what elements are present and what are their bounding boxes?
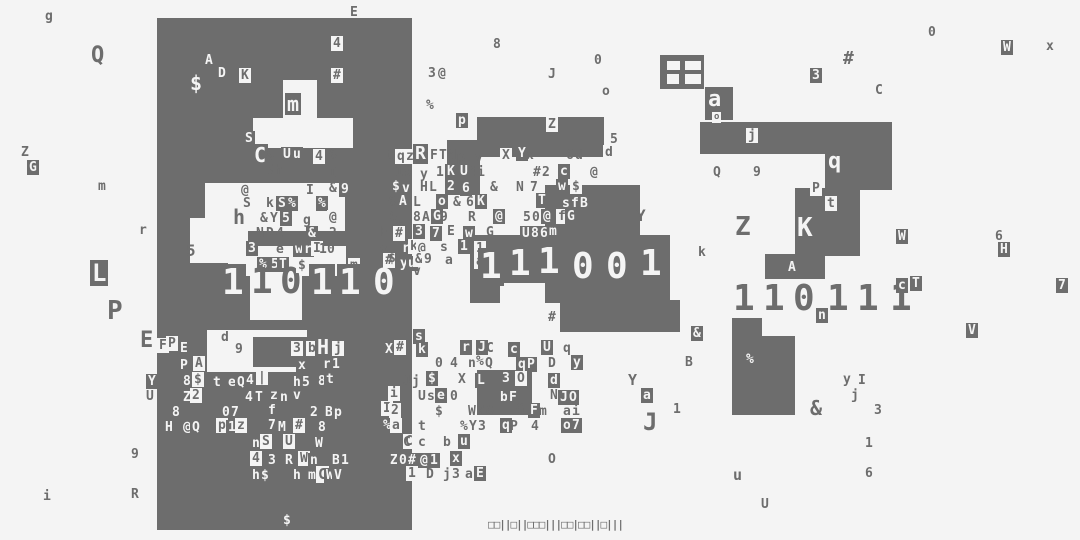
- glyph: 5: [523, 211, 531, 224]
- glyph: %: [460, 420, 468, 433]
- glyph: U: [761, 498, 769, 511]
- glyph: 5: [266, 164, 274, 177]
- glyph: #: [843, 50, 854, 68]
- glyph: J: [403, 375, 411, 388]
- glyph: P: [166, 336, 178, 351]
- glyph: H: [420, 181, 428, 194]
- glyph: 1: [428, 453, 440, 468]
- glyph: 3: [291, 341, 303, 356]
- glyph: &: [306, 226, 318, 241]
- glyph: 7: [477, 405, 485, 418]
- glyph: E: [140, 330, 153, 352]
- glyph: A: [786, 260, 798, 275]
- glyph: K: [795, 214, 815, 242]
- ink-block: [732, 336, 795, 415]
- glyph: k: [416, 342, 428, 357]
- glyph: R: [468, 211, 476, 224]
- glyph: g: [45, 10, 53, 23]
- glyph: 8: [493, 38, 501, 51]
- glyph: $: [281, 513, 293, 528]
- glyph: 3: [874, 404, 882, 417]
- glyph: 4: [468, 166, 476, 179]
- glyph: o: [602, 85, 610, 98]
- glyph: o: [380, 243, 388, 256]
- glyph: 9: [753, 166, 761, 179]
- glyph: t: [418, 420, 426, 433]
- glyph: $: [188, 72, 204, 94]
- glyph: a: [445, 254, 453, 267]
- glyph: V: [332, 468, 344, 483]
- glyph: j: [332, 341, 344, 356]
- glyph: i: [572, 405, 580, 418]
- glyph: 9: [235, 343, 243, 356]
- glyph: U: [418, 390, 426, 403]
- glyph: I: [858, 374, 866, 387]
- glyph: t: [324, 372, 336, 387]
- glyph: #: [331, 68, 343, 83]
- glyph: 2: [389, 403, 401, 418]
- glyph: 1: [863, 436, 875, 451]
- glyph: d: [221, 331, 229, 344]
- glyph: 8: [413, 211, 421, 224]
- glyph: q: [563, 342, 571, 355]
- glyph: O: [515, 371, 527, 386]
- glyph: Z: [735, 214, 751, 240]
- glyph: a: [641, 388, 653, 403]
- glyph: c: [418, 436, 426, 449]
- glyph: J: [643, 410, 657, 434]
- glyph: |: [256, 370, 268, 385]
- glyph: v: [291, 388, 303, 403]
- glyph: %: [316, 196, 328, 211]
- glyph: &: [490, 181, 498, 194]
- glyph: P: [810, 181, 822, 196]
- glyph: 6: [329, 149, 337, 162]
- glyph: 1: [763, 281, 785, 317]
- glyph: y: [571, 355, 583, 370]
- glyph: m: [547, 224, 559, 239]
- glyph: n: [816, 308, 828, 323]
- glyph: 1: [309, 264, 335, 302]
- glyph: s: [427, 390, 435, 403]
- glyph: 1: [478, 248, 504, 286]
- glyph: C: [875, 84, 883, 97]
- glyph: g: [395, 213, 403, 226]
- glyph: X: [500, 148, 512, 163]
- glyph: n: [278, 390, 290, 405]
- glyph: #: [394, 340, 406, 355]
- glyph: v: [475, 151, 483, 164]
- glyph: 9: [131, 448, 139, 461]
- glyph: r: [139, 224, 147, 237]
- glyph: c: [508, 342, 520, 357]
- glyph: $: [570, 179, 582, 194]
- glyph: p: [457, 151, 465, 164]
- glyph: @: [436, 66, 448, 81]
- ink-block: [477, 117, 604, 157]
- glyph: z: [235, 418, 247, 433]
- glyph: Y: [628, 373, 637, 388]
- glyph: 1: [638, 245, 664, 283]
- glyph: E: [474, 466, 486, 481]
- glyph: d: [603, 145, 615, 160]
- glyph: p: [456, 113, 468, 128]
- glyph: Q: [713, 166, 721, 179]
- glyph: 0: [327, 243, 335, 256]
- glyph: n: [468, 357, 476, 370]
- glyph: 2: [542, 166, 550, 179]
- glyph: C: [403, 436, 411, 449]
- glyph: K: [239, 68, 251, 83]
- glyph: W: [313, 436, 325, 451]
- glyph: K: [445, 164, 457, 179]
- glyph: p: [332, 405, 344, 420]
- glyph: o: [712, 112, 721, 123]
- glyph: O: [548, 453, 556, 466]
- glyph: 1: [220, 264, 246, 302]
- glyph: 4: [244, 373, 256, 388]
- glyph: G: [516, 403, 524, 416]
- art-canvas: gQZGmrLPEFPEYU9iREADK$4#mSC&Uu465hI@I&9S…: [0, 0, 1080, 540]
- glyph: B: [578, 196, 590, 211]
- glyph: $: [192, 372, 204, 387]
- glyph: A: [397, 194, 409, 209]
- glyph: H: [315, 336, 331, 358]
- glyph: 3: [500, 371, 512, 386]
- glyph: J: [548, 68, 556, 81]
- glyph: r: [460, 340, 472, 355]
- glyph: $: [388, 252, 396, 265]
- glyph: 0: [371, 264, 397, 302]
- glyph: E: [380, 226, 388, 239]
- glyph: T: [910, 276, 922, 291]
- glyph: b: [443, 436, 451, 449]
- glyph: 5: [280, 211, 292, 226]
- glyph: 4: [276, 227, 284, 240]
- glyph: O: [486, 405, 494, 418]
- glyph: 9: [422, 252, 434, 267]
- glyph: D: [216, 66, 228, 81]
- glyph: f: [266, 403, 278, 418]
- glyph: j: [412, 375, 420, 388]
- glyph: 6: [863, 466, 875, 481]
- glyph: 0: [435, 357, 443, 370]
- glyph: c: [896, 278, 908, 293]
- glyph: #: [546, 310, 558, 325]
- glyph: Z: [21, 146, 29, 159]
- glyph: j: [746, 128, 758, 143]
- glyph: i: [43, 490, 51, 503]
- glyph: V: [966, 323, 978, 338]
- glyph: $: [435, 405, 443, 418]
- glyph: $: [296, 258, 308, 273]
- glyph: R: [386, 211, 394, 224]
- glyph: O: [567, 390, 579, 405]
- glyph: h: [275, 164, 283, 177]
- glyph: u: [291, 147, 303, 162]
- glyph: w: [556, 179, 568, 194]
- ink-block: [700, 122, 892, 154]
- glyph: F: [430, 149, 438, 162]
- glyph: U: [283, 434, 295, 449]
- glyph: %: [744, 352, 756, 367]
- glyph: 1: [395, 166, 403, 179]
- glyph: #: [293, 418, 305, 433]
- glyph: 1: [406, 466, 418, 481]
- glyph: A: [203, 53, 215, 68]
- glyph: 0: [604, 248, 630, 286]
- glyph: Y: [270, 212, 278, 225]
- glyph: 0: [570, 248, 596, 286]
- glyph: 1: [337, 264, 363, 302]
- glyph: I: [306, 184, 314, 197]
- glyph: 9: [404, 166, 412, 179]
- glyph: j: [443, 468, 451, 481]
- glyph: Y: [146, 374, 158, 389]
- glyph: R: [283, 453, 295, 468]
- glyph: N: [256, 227, 264, 240]
- glyph: $: [259, 468, 271, 483]
- glyph: k: [266, 197, 274, 210]
- glyph: 4: [450, 357, 458, 370]
- glyph: 3: [478, 420, 486, 433]
- glyph: 1: [733, 281, 755, 317]
- glyph: u: [458, 434, 470, 449]
- paper-block: [500, 283, 545, 305]
- glyph: 2: [190, 388, 202, 403]
- glyph: □□||□||□□□|||□□|□□||□|||: [488, 519, 623, 530]
- glyph: A: [422, 211, 430, 224]
- glyph: x: [1046, 40, 1054, 53]
- glyph: 9: [440, 211, 448, 224]
- glyph: U: [541, 340, 553, 355]
- glyph: 4: [250, 451, 262, 466]
- glyph: 1: [339, 453, 351, 468]
- glyph: 1: [251, 264, 273, 300]
- glyph: I: [329, 167, 337, 180]
- glyph: a: [563, 405, 571, 418]
- glyph: @: [327, 210, 339, 225]
- glyph: h: [233, 207, 245, 227]
- glyph: y: [843, 373, 851, 386]
- glyph: A: [193, 356, 205, 371]
- glyph: 4: [531, 420, 539, 433]
- glyph: 9: [339, 182, 351, 197]
- glyph: i: [388, 386, 400, 401]
- glyph: W: [468, 405, 476, 418]
- glyph: a: [706, 88, 723, 112]
- ink-block: [560, 300, 680, 332]
- glyph: P: [107, 298, 123, 324]
- glyph: 7: [570, 418, 582, 433]
- glyph: W: [1001, 40, 1013, 55]
- glyph: P: [510, 420, 518, 433]
- glyph: T: [253, 390, 265, 405]
- glyph: #: [533, 166, 541, 179]
- glyph: 6: [460, 181, 472, 196]
- glyph: e: [276, 243, 284, 256]
- glyph: P: [178, 358, 190, 373]
- glyph: L: [90, 260, 108, 286]
- glyph: 4: [331, 36, 343, 51]
- glyph: k: [698, 246, 706, 259]
- glyph: Q: [485, 357, 493, 370]
- glyph: L: [413, 196, 421, 209]
- glyph: N: [448, 149, 456, 162]
- glyph: 4: [313, 149, 325, 164]
- glyph: G: [565, 209, 577, 224]
- glyph: X: [458, 373, 466, 386]
- glyph: H: [163, 420, 175, 435]
- glyph: 1: [507, 245, 533, 283]
- glyph: S: [260, 434, 272, 449]
- glyph: x: [526, 149, 534, 162]
- glyph: d: [548, 373, 560, 388]
- glyph: 5: [186, 243, 196, 259]
- glyph: E: [445, 224, 457, 239]
- glyph: 0: [450, 390, 458, 403]
- glyph: o: [436, 194, 448, 209]
- glyph: L: [475, 373, 487, 388]
- glyph: 3: [246, 241, 258, 256]
- glyph: 6: [388, 196, 396, 209]
- glyph: 1: [458, 239, 470, 254]
- glyph: 0: [594, 54, 602, 67]
- glyph: t: [386, 149, 394, 162]
- glyph: i: [477, 166, 485, 179]
- glyph: E: [350, 6, 358, 19]
- glyph: %: [286, 196, 298, 211]
- glyph: M: [276, 420, 288, 435]
- glyph: m: [285, 93, 301, 115]
- glyph: D: [548, 357, 556, 370]
- glyph: e: [435, 388, 447, 403]
- glyph: Y: [636, 208, 646, 224]
- glyph: 0: [793, 281, 815, 317]
- glyph: @: [493, 209, 505, 224]
- paper-block: [685, 61, 701, 70]
- glyph: &: [691, 326, 703, 341]
- glyph: t: [825, 196, 837, 211]
- glyph: x: [296, 358, 308, 373]
- glyph: L: [429, 181, 437, 194]
- glyph: D: [426, 468, 434, 481]
- glyph: 3: [452, 468, 460, 481]
- paper-block: [667, 61, 680, 70]
- glyph: c: [558, 164, 570, 179]
- glyph: 0: [532, 211, 540, 224]
- glyph: %: [476, 355, 484, 368]
- glyph: 1: [319, 243, 327, 256]
- paper-block: [685, 74, 701, 84]
- glyph: Y: [469, 420, 477, 433]
- glyph: @: [541, 209, 553, 224]
- glyph: K: [475, 194, 487, 209]
- paper-block: [667, 74, 679, 84]
- glyph: 2: [308, 405, 320, 420]
- glyph: 7: [430, 226, 442, 241]
- glyph: Q: [91, 45, 104, 67]
- glyph: 1: [857, 281, 879, 317]
- glyph: Z: [546, 117, 558, 132]
- glyph: 6: [466, 196, 474, 209]
- glyph: 8: [316, 420, 328, 435]
- glyph: R: [413, 144, 428, 164]
- glyph: T: [439, 149, 447, 162]
- glyph: a: [465, 468, 473, 481]
- glyph: m: [98, 180, 106, 193]
- glyph: &: [453, 196, 461, 209]
- glyph: 1: [827, 281, 849, 317]
- glyph: 1: [673, 403, 681, 416]
- glyph: @: [590, 166, 598, 179]
- glyph: t: [211, 375, 223, 390]
- glyph: j: [851, 389, 859, 402]
- glyph: H: [998, 242, 1010, 257]
- glyph: D: [266, 227, 274, 240]
- glyph: 1: [330, 357, 342, 372]
- glyph: x: [450, 451, 462, 466]
- glyph: 6: [566, 149, 574, 162]
- glyph: d: [575, 149, 583, 162]
- glyph: 2: [445, 179, 457, 194]
- glyph: W: [896, 229, 908, 244]
- glyph: E: [178, 341, 190, 356]
- glyph: Q: [190, 420, 202, 435]
- glyph: 0: [928, 26, 936, 39]
- glyph: a: [390, 418, 402, 433]
- glyph: U: [146, 390, 154, 403]
- glyph: 3: [810, 68, 822, 83]
- glyph: 8: [170, 405, 182, 420]
- glyph: G: [27, 160, 39, 175]
- glyph: R: [131, 488, 139, 501]
- glyph: 3: [266, 453, 278, 468]
- glyph: N: [516, 181, 524, 194]
- glyph: h: [291, 468, 303, 483]
- glyph: #: [393, 226, 405, 241]
- glyph: G: [486, 226, 494, 239]
- glyph: &: [260, 212, 268, 225]
- glyph: 2: [329, 227, 337, 240]
- glyph: B: [685, 356, 693, 369]
- glyph: u: [733, 468, 742, 483]
- glyph: m: [539, 405, 547, 418]
- glyph: P: [525, 357, 537, 372]
- glyph: T: [536, 193, 548, 208]
- glyph: %: [426, 99, 434, 112]
- glyph: 1: [436, 166, 444, 179]
- glyph: $: [426, 371, 438, 386]
- glyph: &: [810, 398, 822, 418]
- glyph: &: [329, 182, 337, 195]
- glyph: &: [266, 150, 274, 163]
- glyph: 1: [536, 243, 562, 281]
- glyph: 7: [1056, 278, 1068, 293]
- glyph: 3: [413, 224, 425, 239]
- glyph: C: [486, 342, 494, 355]
- glyph: q: [826, 150, 843, 174]
